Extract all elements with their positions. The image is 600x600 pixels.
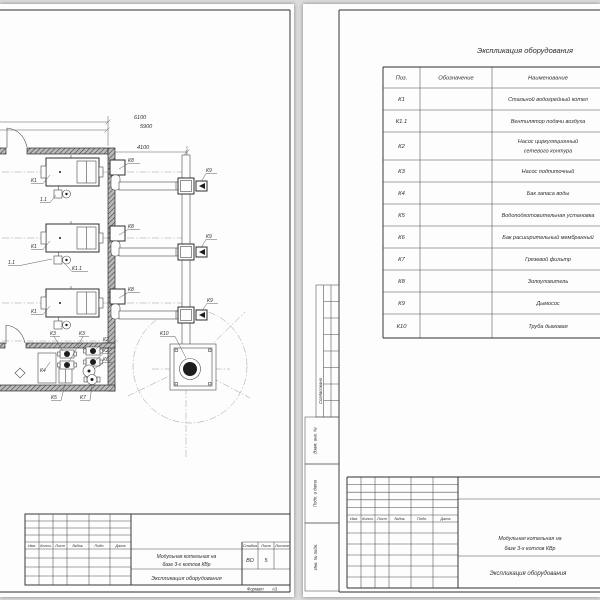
spec-name: Труба дымовая (528, 324, 567, 330)
spec-row-k7: К7 Грязевой фильтр (398, 256, 571, 263)
spec-row-k3: К3 Насос подпиточный (398, 168, 574, 175)
label-fan-2: 1.1 (8, 260, 15, 266)
tb-col-data: Дата (439, 517, 450, 521)
right-sheet-specification: Согласовано Взам. инв. № Подп. и дата Ин… (303, 4, 600, 597)
chimney-k10 (170, 344, 216, 390)
label-k10: К10 (160, 331, 169, 337)
tb-project-line-1: Модульная котельная на (157, 554, 217, 560)
tb-document-title: Экспликация оборудования (151, 576, 221, 582)
spec-row-k5: К5 Водоподготовительная установка (398, 213, 594, 219)
tb-project-line-2: базе 3-х котлов КВр (505, 546, 556, 552)
smoke-exhauster-k9-3 (196, 310, 207, 320)
specification-drawing: Согласовано Взам. инв. № Подп. и дата Ин… (303, 4, 600, 597)
label-k8-3: К8 (128, 287, 134, 293)
spec-row-k8: К8 Золоуловитель (398, 279, 568, 285)
label-k7: К7 (80, 395, 86, 401)
margin-stamp-approved: Согласовано (316, 285, 339, 417)
dim-label-4100: 4100 (137, 145, 150, 151)
stamp-podp-label: Подп. и дата (313, 479, 318, 507)
drawing-viewer-canvas: 6100 5900 4100 (0, 0, 600, 600)
spec-table-title: Экспликация оборудования (477, 46, 573, 55)
spec-pos: К1.1 (396, 119, 407, 125)
spec-header-name: Наименование (528, 76, 569, 82)
spec-pos: К10 (397, 324, 408, 330)
water-treatment-unit-k5 (59, 367, 72, 383)
dim-label-5900: 5900 (140, 124, 153, 130)
label-k1-2: К1 (31, 244, 37, 250)
duct-junction-3 (178, 307, 194, 323)
left-title-block: Изм. Колич. Лист №док. Подп. Дата Стадия… (25, 514, 290, 592)
spec-name: Вентилятор подачи воздуха (511, 119, 586, 125)
tb-col-podp: Подп. (94, 544, 104, 548)
spec-pos: К1 (398, 97, 405, 103)
margin-stamp-vzam: Взам. инв. № (305, 417, 339, 464)
tb-col-list: Лист (54, 544, 65, 548)
tb-col-kolich: Колич. (362, 517, 374, 521)
label-fan-3: К1.1 (72, 266, 82, 272)
spec-name: Стальной водогрейный котел (508, 96, 588, 103)
tb-project-line-1: Модульная котельная на (498, 536, 561, 542)
format-label: Формат (247, 587, 264, 592)
spec-name: Насос подпиточный (522, 168, 575, 175)
dim-label-6100: 6100 (134, 115, 147, 121)
label-fan-1: 1.1 (40, 197, 47, 203)
tb-col-podp: Подп. (417, 517, 427, 521)
tb-col-list: Лист (376, 517, 387, 521)
spec-name-line2: сетевого контура (524, 149, 572, 155)
tb-col-ndok: №док. (394, 517, 405, 521)
spec-name: Бак запаса воды (527, 191, 570, 197)
spec-pos: К8 (398, 279, 405, 285)
tb-sheet-value: 5 (264, 558, 268, 564)
label-k5: К5 (51, 395, 57, 401)
flue-duct-1 (119, 182, 183, 190)
spec-name: Дымосос (535, 301, 560, 307)
spec-name: Насос циркуляционный (518, 138, 578, 145)
duct-junction-2 (178, 244, 194, 260)
label-k3-2: К3 (79, 331, 85, 337)
boiler-k1-3 (41, 286, 103, 317)
tb-sheet-header: Лист (260, 544, 271, 548)
spec-row-k1-1: К1.1 Вентилятор подачи воздуха (396, 119, 586, 125)
tb-document-title: Экспликация оборудования (490, 571, 568, 577)
label-k8-2: К8 (128, 224, 134, 230)
tb-col-kolich: Колич. (40, 544, 52, 548)
label-k3-1: К3 (50, 331, 56, 337)
spec-header-designation: Обозначение (438, 76, 474, 82)
flue-duct-2 (119, 248, 183, 256)
combustion-fan-2 (54, 252, 71, 264)
label-k2-1: К2 (103, 337, 109, 343)
spec-row-k6: К6 Бак расширительный мембранный (398, 234, 594, 241)
tb-sheets-header: Листов (274, 544, 289, 548)
makeup-pump-k3-2 (58, 361, 77, 369)
spec-pos: К7 (398, 257, 405, 263)
label-k4: К4 (40, 368, 46, 374)
spec-row-k4: К4 Бак запаса воды (398, 191, 569, 197)
tb-col-ndok: №док. (72, 544, 83, 548)
smoke-exhauster-k9-1 (196, 181, 207, 191)
right-title-block: Изм. Колич. Лист №док. Подп. Дата Модуль… (347, 477, 600, 588)
left-sheet-plan: 6100 5900 4100 (0, 4, 294, 597)
spec-row-k2: К2 Насос циркуляционный сетевого контура (398, 138, 578, 155)
spec-header-pos: Поз. (396, 76, 408, 82)
spec-pos: К2 (398, 144, 405, 150)
spec-name: Золоуловитель (528, 279, 569, 285)
label-k1-1: К1 (31, 178, 37, 184)
tb-col-data: Дата (114, 544, 125, 548)
combustion-fan-1 (54, 186, 71, 198)
spec-name: Водоподготовительная установка (502, 213, 595, 219)
spec-name: Бак расширительный мембранный (502, 234, 593, 241)
tb-project-line-2: базе 3-х котлов КВр (162, 562, 210, 568)
plan-drawing: 6100 5900 4100 (0, 4, 294, 597)
label-k6: К6 (103, 357, 109, 363)
combustion-fan-3 (54, 317, 71, 329)
flue-duct-3 (119, 311, 183, 319)
spec-pos: К4 (398, 191, 405, 197)
stamp-inv-label: Инв. № подл. (313, 544, 318, 571)
boiler-k1-2 (41, 221, 103, 252)
margin-stamp-podp: Подп. и дата (305, 464, 339, 523)
spec-row-k10: К10 Труба дымовая (397, 324, 568, 330)
floor-drain (15, 368, 25, 378)
format-value: А3 (271, 587, 278, 592)
tb-stage-value: ВО (246, 558, 255, 564)
margin-stamp-inv: Инв. № подл. (305, 523, 339, 591)
label-k9-2: К9 (206, 234, 212, 240)
stamp-vzam-label: Взам. инв. № (313, 427, 318, 454)
boiler-k1-1 (41, 155, 103, 186)
smoke-exhauster-k9-2 (196, 247, 207, 257)
label-k9-3: К9 (207, 298, 213, 304)
label-k1-3: К1 (31, 309, 37, 315)
spec-pos: К9 (398, 301, 405, 307)
spec-row-k1: К1 Стальной водогрейный котел (398, 96, 588, 103)
label-k8-1: К8 (128, 158, 134, 164)
circulation-pump-k2-1 (84, 347, 103, 355)
label-k9-1: К9 (206, 168, 212, 174)
stamp-approved-label: Согласовано (318, 377, 323, 404)
spec-name: Грязевой фильтр (525, 256, 571, 263)
spec-pos: К5 (398, 213, 405, 219)
duct-junction-1 (178, 178, 194, 194)
entrance-door (7, 128, 27, 148)
tb-col-izm: Изм. (350, 517, 358, 521)
spec-table: Поз. Обозначение Наименование К1 Стально… (383, 67, 600, 338)
tb-col-izm: Изм. (28, 544, 36, 548)
label-k2-2: К2 (103, 348, 109, 354)
spec-pos: К6 (398, 235, 405, 241)
spec-pos: К3 (398, 169, 405, 175)
spec-row-k9: К9 Дымосос (398, 301, 560, 307)
tb-stage-header: Стадия (243, 544, 257, 548)
